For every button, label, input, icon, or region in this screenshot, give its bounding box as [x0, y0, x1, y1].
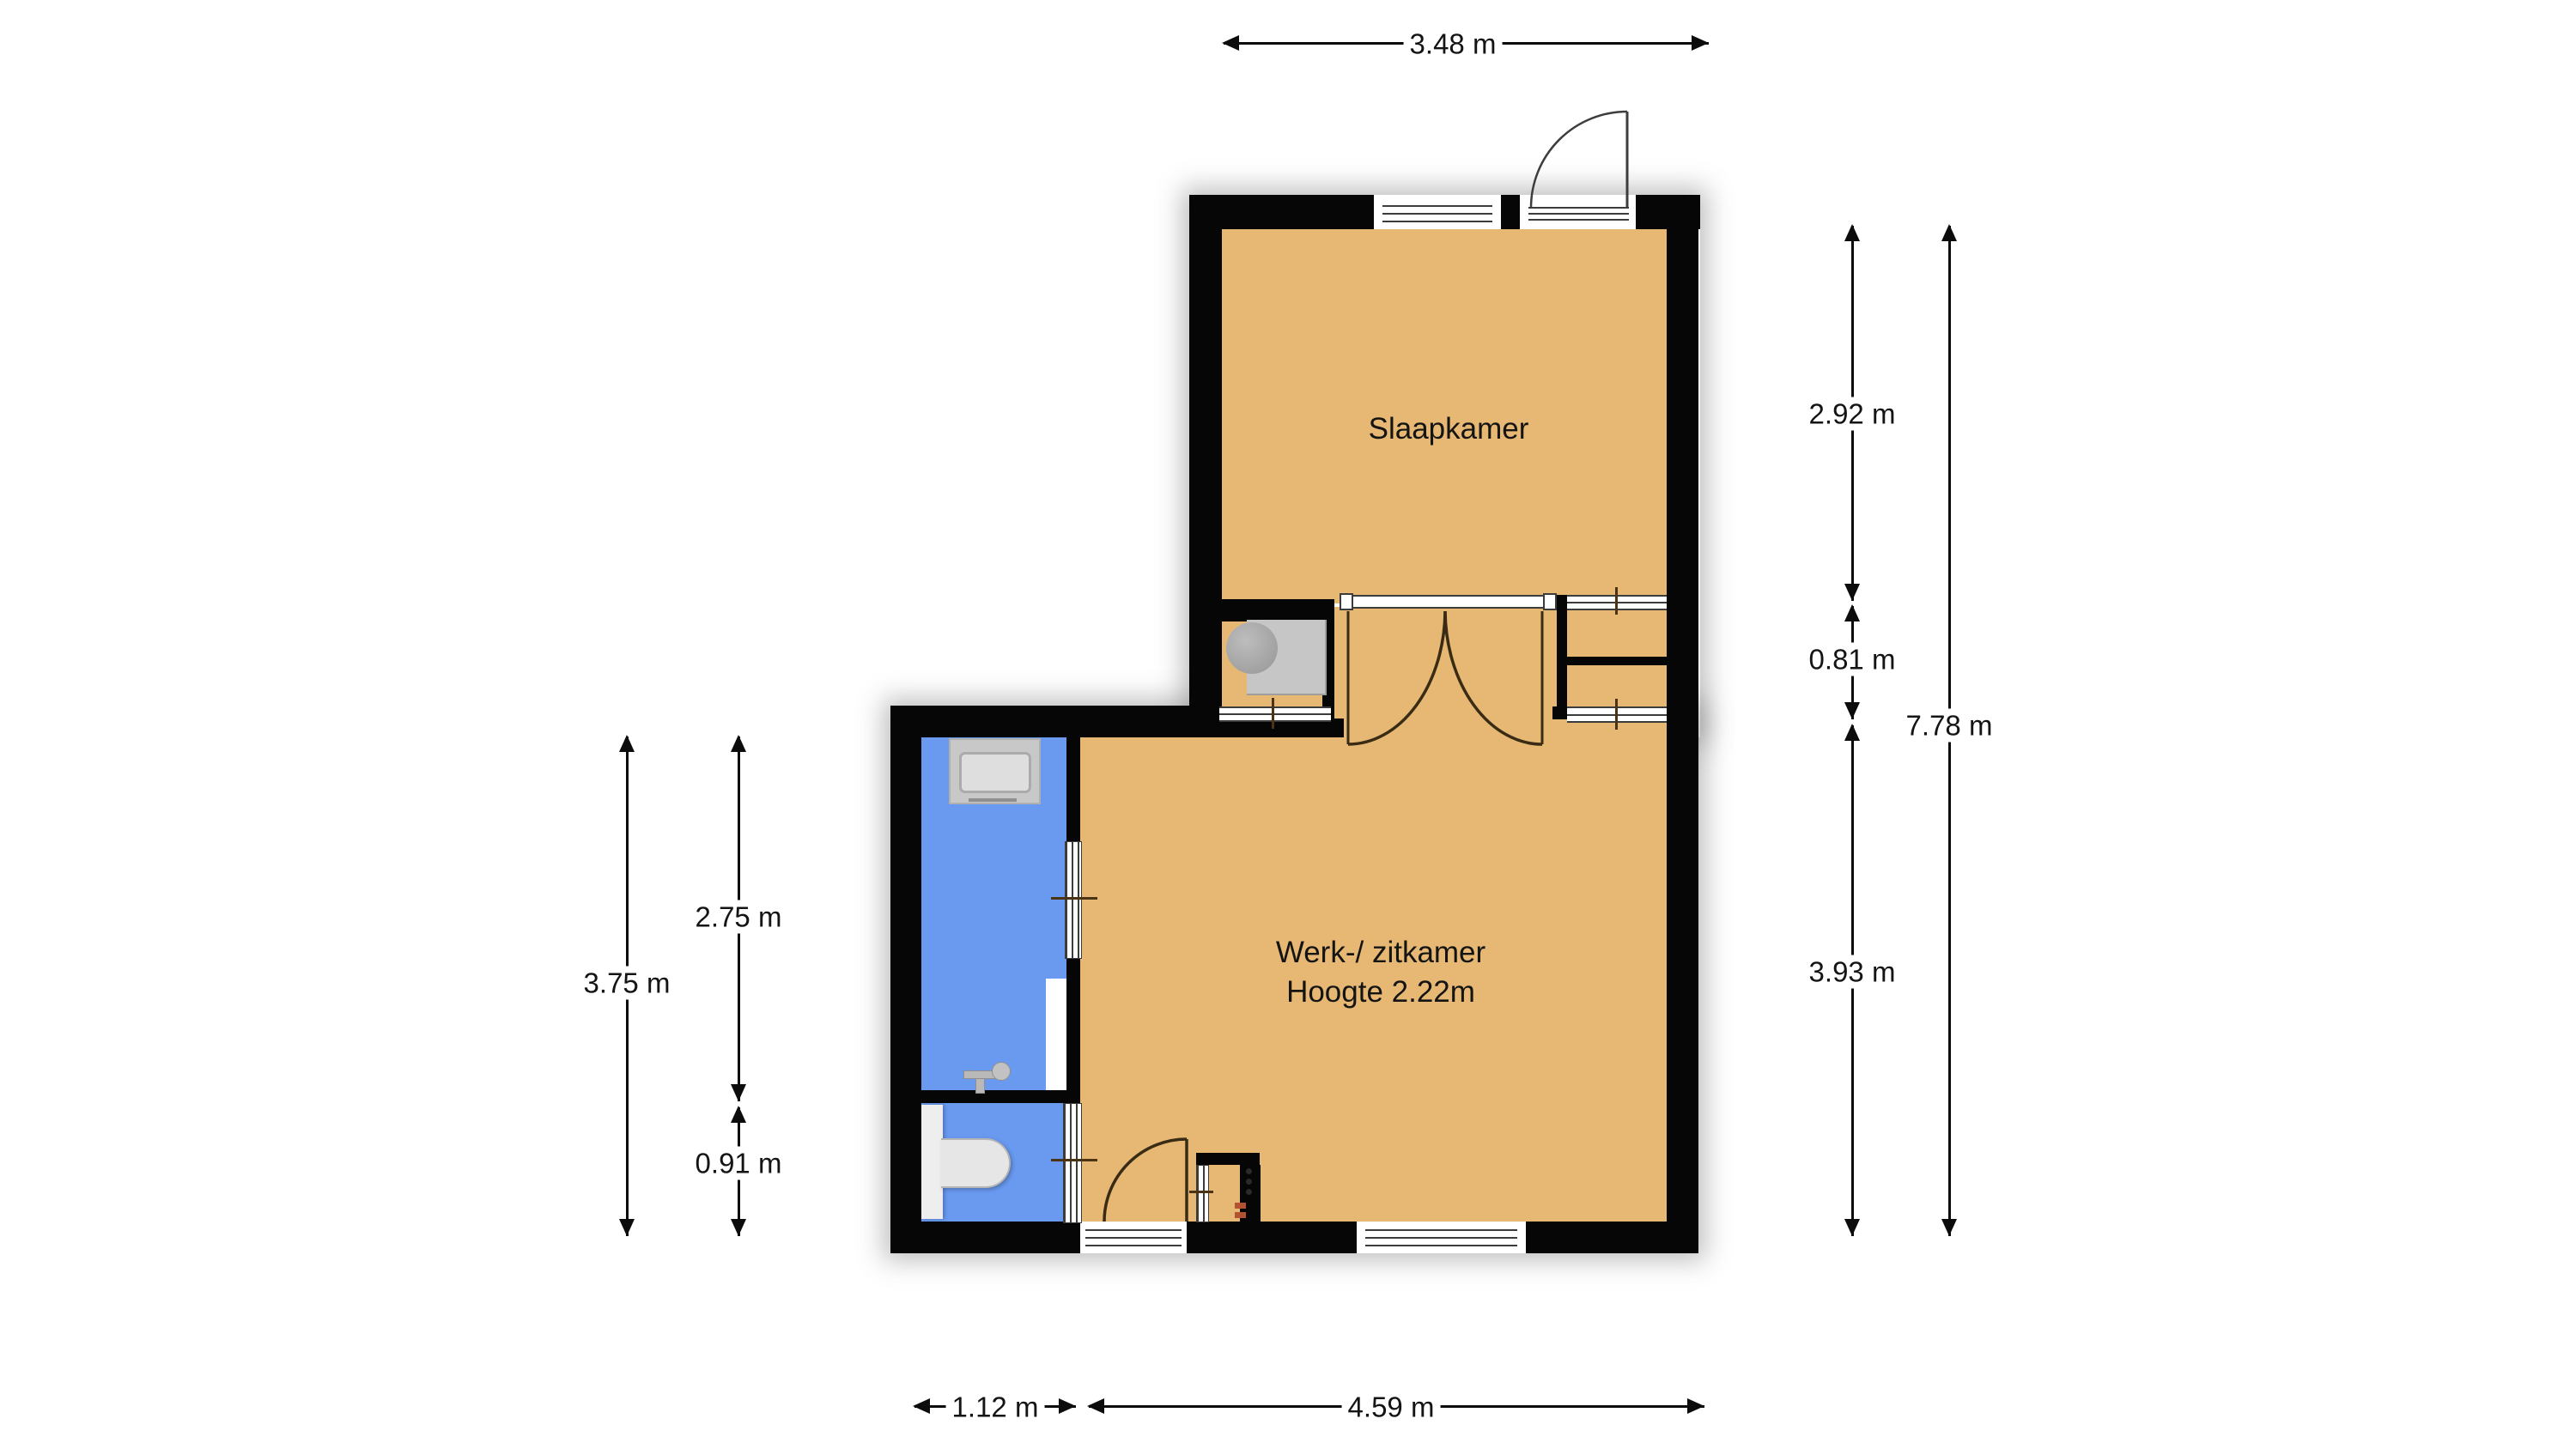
- radiator-panel: [1046, 979, 1066, 1090]
- meter-dot-3: [1246, 1189, 1252, 1195]
- closet-vent-top-tick: [1615, 587, 1618, 615]
- dim-right-living-label: 3.93 m: [1803, 955, 1902, 989]
- toilet-door: [1063, 1103, 1082, 1223]
- dim-left-total-label: 3.75 m: [578, 967, 677, 1000]
- wall-bottom-3: [1526, 1222, 1698, 1253]
- dim-left-toilet-arrow-top: [731, 1106, 746, 1123]
- sink-faucet-head: [992, 1062, 1011, 1081]
- dim-left-toilet-arrow-bottom: [731, 1219, 746, 1236]
- dim-left-bathroom-label: 2.75 m: [690, 900, 788, 934]
- dim-right-hall-arrow-top: [1844, 604, 1860, 621]
- wall-meter-cabinet-h: [1196, 1153, 1260, 1165]
- dim-right-total-arrow-bottom: [1941, 1219, 1957, 1236]
- wall-bottom-1: [890, 1222, 1080, 1253]
- dim-left-bathroom-arrow-bottom: [731, 1084, 746, 1101]
- dim-right-bedroom-arrow-top: [1844, 224, 1860, 241]
- door-swing-double-interior: [1334, 597, 1557, 755]
- wall-left-upper: [1189, 195, 1222, 737]
- closet-vent-bottom-tick: [1615, 699, 1618, 730]
- dim-right-bedroom-arrow-bottom: [1844, 584, 1860, 601]
- dim-right-hall-label: 0.81 m: [1803, 643, 1902, 676]
- room-label-living-height: Hoogte 2.22m: [1276, 973, 1485, 1012]
- shower-tray: [959, 752, 1031, 793]
- dim-left-total-arrow-top: [619, 735, 635, 752]
- dim-right-living-arrow-bottom: [1844, 1219, 1860, 1236]
- wall-bottom-2: [1187, 1222, 1357, 1253]
- dim-left-total-arrow-bottom: [619, 1219, 635, 1236]
- meter-dot-1: [1246, 1168, 1252, 1174]
- wall-bath-living-lower: [1066, 957, 1080, 1103]
- toilet-bowl: [941, 1138, 1011, 1188]
- wall-top-pier: [1501, 195, 1520, 229]
- wall-bath-living-upper: [1066, 737, 1080, 841]
- room-label-living: Werk-/ zitkamer Hoogte 2.22m: [1276, 933, 1485, 1012]
- wall-duct-top: [1219, 599, 1331, 621]
- dim-bottom-living-arrow-left: [1087, 1398, 1104, 1414]
- room-label-bedroom: Slaapkamer: [1369, 409, 1529, 449]
- boiler-tank: [1226, 622, 1278, 674]
- dim-bottom-bathroom-arrow-left: [913, 1398, 930, 1414]
- window-bottom-glazing: [1365, 1229, 1517, 1246]
- sink-faucet-stub: [975, 1078, 985, 1094]
- dim-bottom-bathroom-arrow-right: [1059, 1398, 1076, 1414]
- meter-red-mark-1: [1235, 1203, 1246, 1209]
- dim-right-living-arrow-top: [1844, 724, 1860, 741]
- meter-red-mark-2: [1235, 1212, 1246, 1218]
- dim-top-arrow-right: [1692, 35, 1709, 51]
- toilet-door-tick: [1051, 1159, 1097, 1161]
- room-label-living-name: Werk-/ zitkamer: [1276, 933, 1485, 973]
- dim-bottom-living-label: 4.59 m: [1342, 1391, 1441, 1424]
- dim-left-toilet-label: 0.91 m: [690, 1147, 788, 1180]
- meter-dot-2: [1246, 1179, 1252, 1185]
- bathroom-door-tick: [1051, 897, 1097, 900]
- floorplan-canvas: 3.48 m 2.92 m 0.81 m 3.93 m 7.78 m 3.75 …: [0, 0, 2576, 1449]
- door-swing-main-entrance: [1097, 1131, 1194, 1228]
- dim-left-bathroom-arrow-top: [731, 735, 746, 752]
- window-top-glazing: [1382, 205, 1492, 222]
- dim-right-hall-arrow-bottom: [1844, 702, 1860, 719]
- wall-right: [1667, 195, 1698, 1253]
- wall-bathroom-top: [890, 706, 1222, 737]
- dim-bottom-living-arrow-right: [1687, 1398, 1704, 1414]
- meter-cabinet-door: [1196, 1165, 1209, 1222]
- bathroom-door: [1065, 841, 1082, 959]
- dim-top-label: 3.48 m: [1404, 27, 1503, 61]
- toilet-cistern: [921, 1105, 943, 1219]
- door-entry-threshold-lines: [1085, 1229, 1182, 1246]
- door-swing-top-entry: [1518, 99, 1638, 215]
- wall-closet-bar: [1557, 657, 1667, 665]
- duct-vent-strip: [1219, 706, 1331, 722]
- duct-vent-tick: [1272, 698, 1274, 729]
- shower-drain: [969, 798, 1017, 802]
- dim-right-bedroom-label: 2.92 m: [1803, 397, 1902, 431]
- wall-bathroom-left: [890, 706, 921, 1253]
- dim-top-arrow-left: [1222, 35, 1239, 51]
- dim-right-total-arrow-top: [1941, 224, 1957, 241]
- wall-bath-toilet-divider: [921, 1090, 1066, 1103]
- dim-right-total-label: 7.78 m: [1900, 709, 1999, 743]
- dim-bottom-bathroom-label: 1.12 m: [946, 1391, 1045, 1424]
